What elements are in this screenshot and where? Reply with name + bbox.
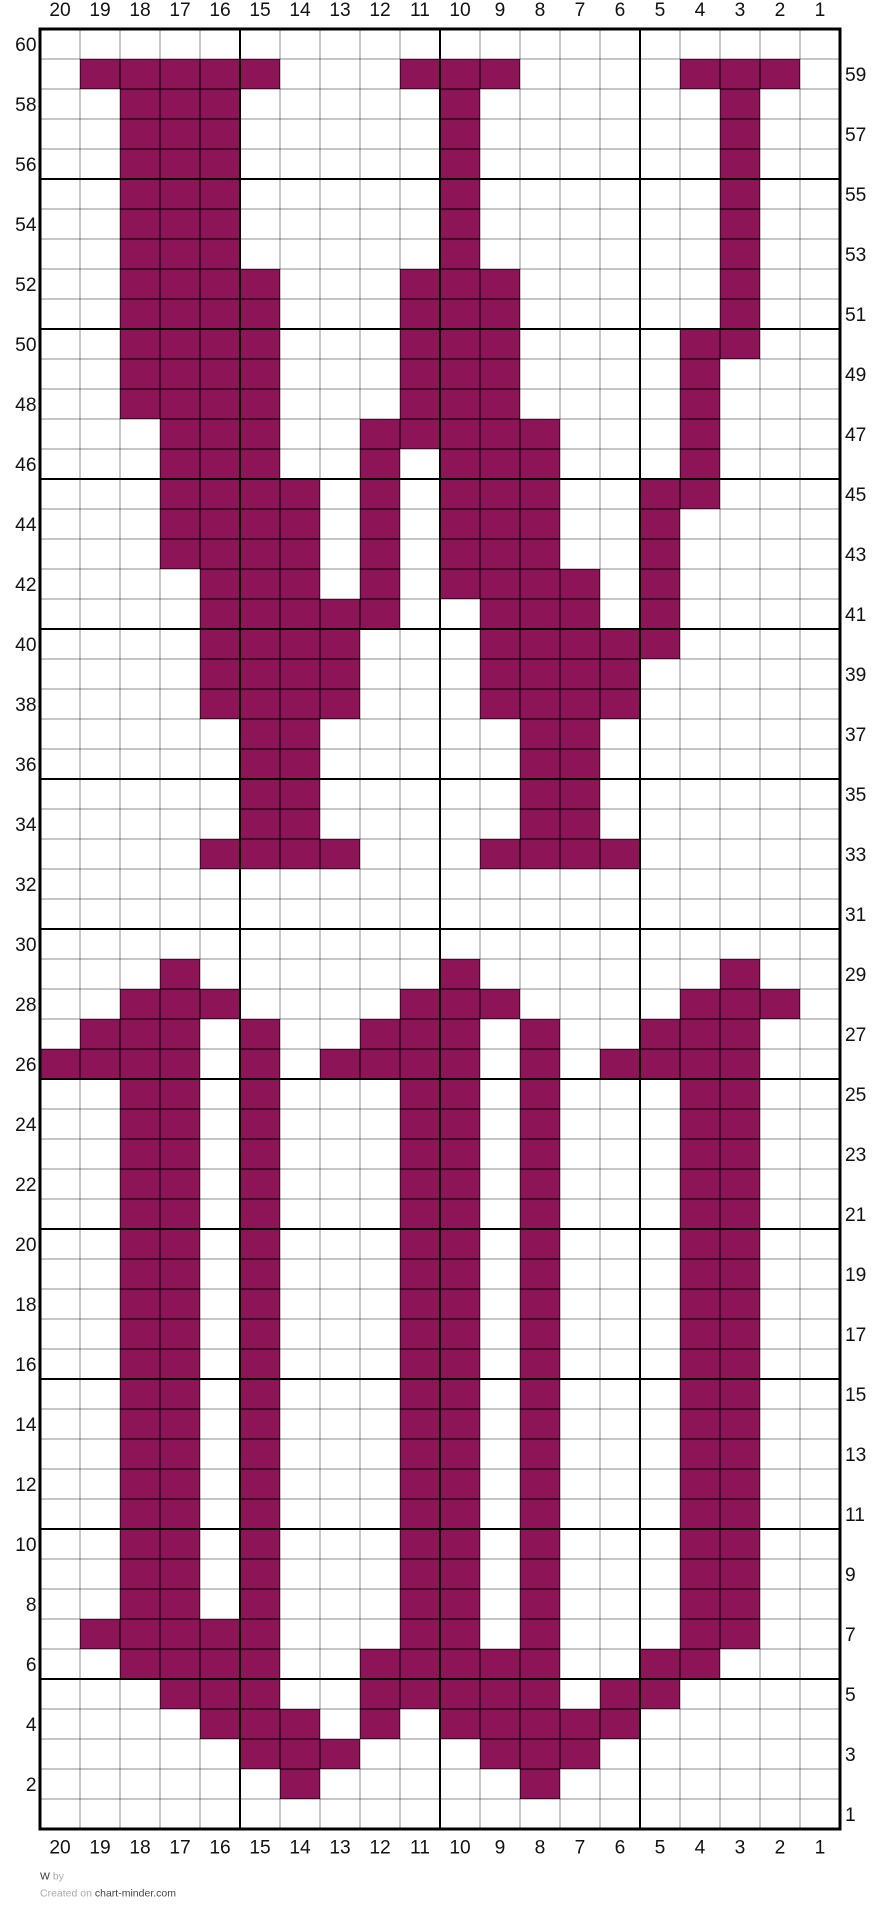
svg-text:43: 43 xyxy=(845,545,866,566)
svg-text:57: 57 xyxy=(845,125,866,146)
svg-text:14: 14 xyxy=(289,1837,311,1858)
svg-text:50: 50 xyxy=(15,335,36,356)
svg-text:15: 15 xyxy=(249,0,270,21)
svg-text:7: 7 xyxy=(575,1837,586,1858)
svg-text:2: 2 xyxy=(775,0,786,21)
svg-text:11: 11 xyxy=(410,0,430,21)
svg-text:20: 20 xyxy=(49,1837,70,1858)
svg-text:12: 12 xyxy=(369,1837,390,1858)
svg-text:36: 36 xyxy=(15,755,36,776)
svg-text:4: 4 xyxy=(695,1837,706,1858)
svg-text:4: 4 xyxy=(26,1715,37,1736)
svg-text:14: 14 xyxy=(289,0,311,21)
svg-text:32: 32 xyxy=(15,875,36,896)
svg-text:42: 42 xyxy=(15,575,36,596)
svg-text:38: 38 xyxy=(15,695,36,716)
svg-text:12: 12 xyxy=(15,1475,36,1496)
svg-text:40: 40 xyxy=(15,635,36,656)
svg-text:33: 33 xyxy=(845,845,866,866)
svg-text:19: 19 xyxy=(89,1837,110,1858)
svg-text:19: 19 xyxy=(845,1265,866,1286)
svg-text:20: 20 xyxy=(15,1235,36,1256)
svg-text:34: 34 xyxy=(15,815,37,836)
svg-text:7: 7 xyxy=(845,1625,856,1646)
svg-text:17: 17 xyxy=(169,0,190,21)
svg-text:9: 9 xyxy=(495,0,506,21)
svg-text:9: 9 xyxy=(845,1565,856,1586)
svg-text:44: 44 xyxy=(15,515,37,536)
svg-text:1: 1 xyxy=(815,0,826,21)
svg-text:59: 59 xyxy=(845,65,866,86)
svg-text:9: 9 xyxy=(495,1837,506,1858)
svg-text:10: 10 xyxy=(15,1535,36,1556)
svg-text:45: 45 xyxy=(845,485,866,506)
svg-text:4: 4 xyxy=(695,0,706,21)
svg-text:15: 15 xyxy=(845,1385,866,1406)
svg-text:14: 14 xyxy=(15,1415,37,1436)
svg-text:6: 6 xyxy=(615,1837,626,1858)
svg-text:18: 18 xyxy=(129,1837,150,1858)
svg-text:Created on chart-minder.com: Created on chart-minder.com xyxy=(40,1888,176,1900)
svg-text:1: 1 xyxy=(845,1805,856,1826)
svg-text:3: 3 xyxy=(845,1745,856,1766)
svg-text:39: 39 xyxy=(845,665,866,686)
svg-text:49: 49 xyxy=(845,365,866,386)
svg-text:13: 13 xyxy=(329,1837,350,1858)
svg-text:10: 10 xyxy=(449,1837,470,1858)
svg-text:24: 24 xyxy=(15,1115,37,1136)
svg-text:7: 7 xyxy=(575,0,586,21)
svg-text:48: 48 xyxy=(15,395,36,416)
svg-text:55: 55 xyxy=(845,185,866,206)
svg-text:W by: W by xyxy=(40,1871,65,1883)
svg-text:16: 16 xyxy=(15,1355,36,1376)
svg-text:8: 8 xyxy=(26,1595,37,1616)
svg-text:2: 2 xyxy=(26,1775,37,1796)
svg-text:58: 58 xyxy=(15,95,36,116)
svg-text:16: 16 xyxy=(209,0,230,21)
svg-text:5: 5 xyxy=(655,1837,666,1858)
svg-text:31: 31 xyxy=(845,905,866,926)
svg-text:13: 13 xyxy=(845,1445,866,1466)
svg-text:11: 11 xyxy=(845,1505,865,1526)
svg-text:11: 11 xyxy=(410,1837,430,1858)
svg-text:13: 13 xyxy=(329,0,350,21)
svg-text:37: 37 xyxy=(845,725,866,746)
svg-text:16: 16 xyxy=(209,1837,230,1858)
svg-text:5: 5 xyxy=(845,1685,856,1706)
svg-text:3: 3 xyxy=(735,1837,746,1858)
svg-text:8: 8 xyxy=(535,1837,546,1858)
svg-text:22: 22 xyxy=(15,1175,36,1196)
svg-text:8: 8 xyxy=(535,0,546,21)
svg-text:5: 5 xyxy=(655,0,666,21)
svg-text:52: 52 xyxy=(15,275,36,296)
svg-text:27: 27 xyxy=(845,1025,866,1046)
svg-text:17: 17 xyxy=(845,1325,866,1346)
svg-text:53: 53 xyxy=(845,245,866,266)
svg-text:41: 41 xyxy=(845,605,866,626)
svg-text:18: 18 xyxy=(129,0,150,21)
svg-text:56: 56 xyxy=(15,155,36,176)
svg-text:2: 2 xyxy=(775,1837,786,1858)
svg-text:12: 12 xyxy=(369,0,390,21)
svg-text:60: 60 xyxy=(15,35,36,56)
svg-text:18: 18 xyxy=(15,1295,36,1316)
svg-text:46: 46 xyxy=(15,455,36,476)
svg-text:20: 20 xyxy=(49,0,70,21)
svg-text:54: 54 xyxy=(15,215,37,236)
svg-text:10: 10 xyxy=(449,0,470,21)
svg-text:47: 47 xyxy=(845,425,866,446)
svg-text:30: 30 xyxy=(15,935,36,956)
svg-text:6: 6 xyxy=(615,0,626,21)
svg-text:23: 23 xyxy=(845,1145,866,1166)
svg-text:51: 51 xyxy=(845,305,866,326)
svg-text:15: 15 xyxy=(249,1837,270,1858)
svg-text:26: 26 xyxy=(15,1055,36,1076)
svg-text:17: 17 xyxy=(169,1837,190,1858)
svg-text:6: 6 xyxy=(26,1655,37,1676)
svg-text:1: 1 xyxy=(815,1837,826,1858)
svg-text:3: 3 xyxy=(735,0,746,21)
svg-text:19: 19 xyxy=(89,0,110,21)
svg-text:25: 25 xyxy=(845,1085,866,1106)
svg-text:21: 21 xyxy=(845,1205,866,1226)
svg-text:35: 35 xyxy=(845,785,866,806)
svg-text:28: 28 xyxy=(15,995,36,1016)
svg-text:29: 29 xyxy=(845,965,866,986)
